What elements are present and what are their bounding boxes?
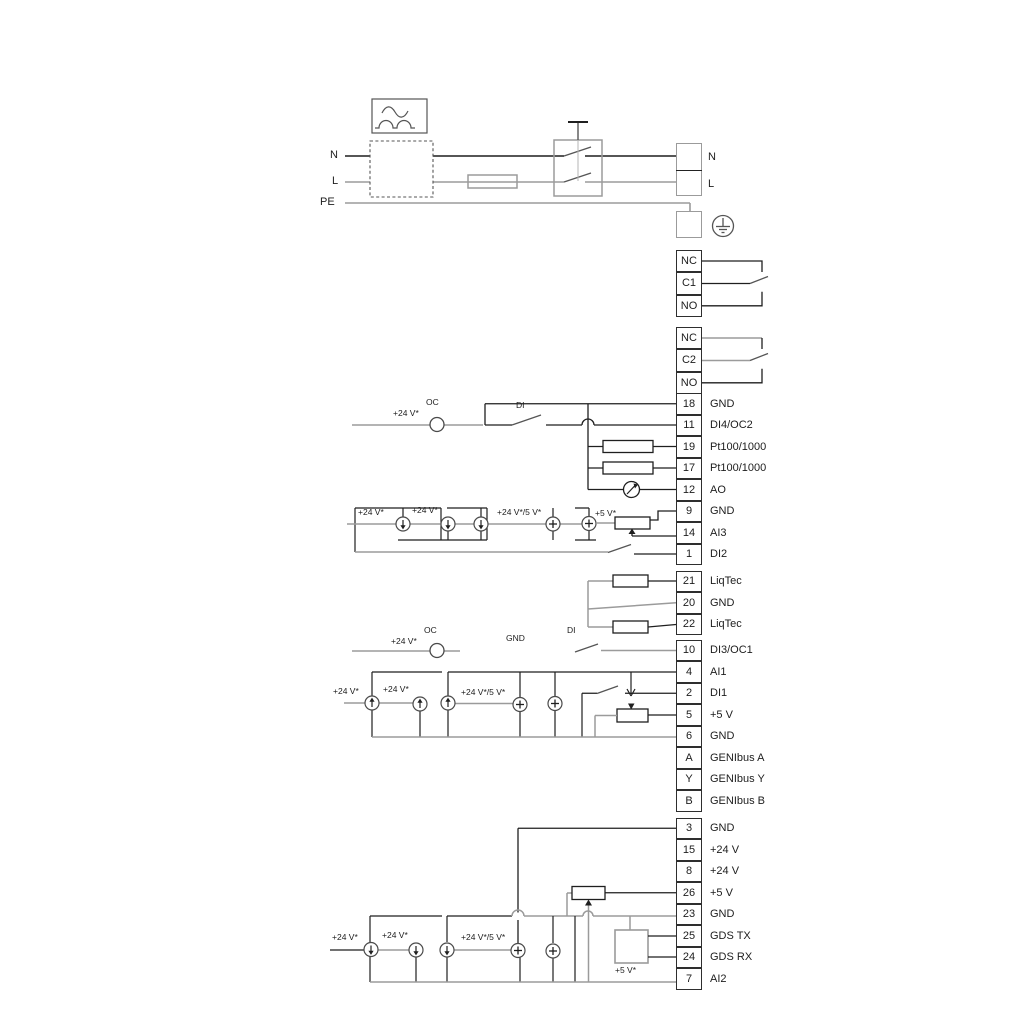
label-supply-24v: +24 V* (382, 930, 408, 940)
wiring-diagram: N L PE N L NCC1NO NCC2NO 18GND11DI4/OC21… (0, 0, 1024, 1024)
terminal-row: 10DI3/OC1 (676, 640, 796, 662)
label-digital-input: DI (516, 400, 525, 410)
label-supply-24v-5v: +24 V*/5 V* (497, 507, 541, 517)
terminal-number: 18 (676, 393, 702, 415)
terminal-label: +5 V (710, 704, 733, 726)
label-supply-5v: +5 V* (595, 508, 616, 518)
label-supply-24v: +24 V* (333, 686, 359, 696)
label-supply-24v: +24 V* (358, 507, 384, 517)
terminal-row: NO (676, 372, 796, 394)
mains-terminal-block (676, 143, 702, 196)
current-source-down-icon (474, 517, 488, 531)
label-supply-24v: +24 V* (383, 684, 409, 694)
terminal-row: 22LiqTec (676, 614, 796, 636)
terminal-number: 26 (676, 882, 702, 904)
terminal-label: DI4/OC2 (710, 415, 753, 437)
terminal-label: GND (710, 501, 734, 523)
terminal-number: NC (676, 327, 702, 349)
terminal-row: BGENIbus B (676, 790, 796, 812)
terminal-row: 17Pt100/1000 (676, 458, 796, 480)
terminal-row: 12AO (676, 479, 796, 501)
terminal-row: 3GND (676, 818, 796, 840)
current-source-down-icon (409, 943, 423, 957)
terminal-row: YGENIbus Y (676, 769, 796, 791)
terminal-row: 21LiqTec (676, 571, 796, 593)
voltage-source-icon (548, 697, 562, 711)
terminal-label: DI2 (710, 544, 727, 566)
terminal-label: AI2 (710, 968, 727, 990)
analog-output-meter-icon (624, 482, 640, 498)
terminal-label: GND (710, 393, 734, 415)
terminal-label: GENIbus A (710, 747, 764, 769)
terminal-row: 8+24 V (676, 861, 796, 883)
terminal-number: C2 (676, 349, 702, 371)
gds-sensor-box (615, 930, 648, 963)
terminal-row: 2DI1 (676, 683, 796, 705)
label-open-collector: OC (426, 397, 439, 407)
terminal-number: 10 (676, 640, 702, 662)
terminal-number: 6 (676, 726, 702, 748)
terminal-number: 19 (676, 436, 702, 458)
label-neutral-right: N (708, 151, 716, 163)
terminal-number: 15 (676, 839, 702, 861)
terminal-label: DI1 (710, 683, 727, 705)
terminal-number: NC (676, 250, 702, 272)
terminal-row: 7AI2 (676, 968, 796, 990)
label-supply-24v-5v: +24 V*/5 V* (461, 687, 505, 697)
terminal-number: NO (676, 295, 702, 317)
current-source-down-icon (396, 517, 410, 531)
terminal-row: 6GND (676, 726, 796, 748)
voltage-source-icon (511, 944, 525, 958)
label-supply-24v: +24 V* (393, 408, 419, 418)
terminal-label: Pt100/1000 (710, 458, 766, 480)
current-source-down-icon (441, 517, 455, 531)
terminal-number: 14 (676, 522, 702, 544)
label-gnd-wire: GND (506, 633, 525, 643)
label-supply-5v: +5 V* (615, 965, 636, 975)
terminal-label: Pt100/1000 (710, 436, 766, 458)
pt100-and-ao-wiring (588, 404, 676, 498)
terminal-row: 24GDS RX (676, 947, 796, 969)
terminal-row: NC (676, 250, 796, 272)
terminal-number: 9 (676, 501, 702, 523)
potentiometer-ai1 (617, 709, 648, 722)
terminal-row: C1 (676, 272, 796, 294)
terminal-label: GND (710, 818, 734, 840)
terminal-row: 15+24 V (676, 839, 796, 861)
terminal-row: 14AI3 (676, 522, 796, 544)
terminal-number: 22 (676, 614, 702, 636)
terminal-number: 17 (676, 458, 702, 480)
terminal-number: 7 (676, 968, 702, 990)
potentiometer-ai2 (572, 887, 605, 900)
terminal-label: +24 V (710, 861, 739, 883)
terminal-label: AO (710, 479, 726, 501)
terminal-number: B (676, 790, 702, 812)
terminal-number: 21 (676, 571, 702, 593)
label-open-collector: OC (424, 625, 437, 635)
terminal-label: LiqTec (710, 614, 742, 636)
terminal-label: GND (710, 726, 734, 748)
terminal-row: 19Pt100/1000 (676, 436, 796, 458)
terminal-number: 23 (676, 904, 702, 926)
isolation-dashed-box (370, 141, 433, 197)
terminal-row: C2 (676, 349, 796, 371)
terminal-label: GDS RX (710, 947, 752, 969)
terminal-number: 1 (676, 544, 702, 566)
terminal-row: 20GND (676, 592, 796, 614)
liqtec-wiring (588, 575, 676, 633)
terminal-row: 23GND (676, 904, 796, 926)
label-line-right: L (708, 178, 714, 190)
label-pe: PE (320, 196, 335, 208)
terminal-number: 2 (676, 683, 702, 705)
terminal-row: AGENIbus A (676, 747, 796, 769)
terminal-number: 3 (676, 818, 702, 840)
terminal-label: LiqTec (710, 571, 742, 593)
label-supply-24v: +24 V* (391, 636, 417, 646)
terminal-number: 5 (676, 704, 702, 726)
terminal-label: +5 V (710, 882, 733, 904)
sensor-supply-lower-wiring (330, 828, 676, 982)
terminal-number: 20 (676, 592, 702, 614)
voltage-source-icon (513, 698, 527, 712)
terminal-number: 8 (676, 861, 702, 883)
terminal-number: 11 (676, 415, 702, 437)
terminal-number: C1 (676, 272, 702, 294)
terminal-row: 5+5 V (676, 704, 796, 726)
terminal-number: NO (676, 372, 702, 394)
terminal-label: AI3 (710, 522, 727, 544)
voltage-source-icon (582, 517, 596, 531)
terminal-row: 26+5 V (676, 882, 796, 904)
terminal-label: +24 V (710, 839, 739, 861)
label-line-left: L (332, 175, 338, 187)
terminal-row: 1DI2 (676, 544, 796, 566)
terminal-row: 25GDS TX (676, 925, 796, 947)
rectifier-symbol-box (372, 99, 427, 133)
terminal-label: GENIbus B (710, 790, 765, 812)
terminal-number: A (676, 747, 702, 769)
protective-earth-icon (713, 216, 734, 237)
current-source-up-icon (413, 697, 427, 711)
terminal-number: Y (676, 769, 702, 791)
voltage-source-icon (546, 944, 560, 958)
current-source-down-icon (440, 943, 454, 957)
current-source-down-icon (364, 943, 378, 957)
terminal-label: GND (710, 904, 734, 926)
sensor-supply-mid-wiring (344, 672, 676, 737)
label-supply-24v: +24 V* (412, 505, 438, 515)
current-source-up-icon (441, 696, 455, 710)
current-source-up-icon (365, 696, 379, 710)
label-supply-24v: +24 V* (332, 932, 358, 942)
terminal-row: 11DI4/OC2 (676, 415, 796, 437)
terminal-label: GENIbus Y (710, 769, 765, 791)
terminal-label: GND (710, 592, 734, 614)
label-neutral-left: N (330, 149, 338, 161)
terminal-row: 4AI1 (676, 661, 796, 683)
terminal-number: 4 (676, 661, 702, 683)
terminal-row: 9GND (676, 501, 796, 523)
terminal-row: NO (676, 295, 796, 317)
terminal-row: NC (676, 327, 796, 349)
terminal-number: 12 (676, 479, 702, 501)
terminal-row: 18GND (676, 393, 796, 415)
label-supply-24v-5v: +24 V*/5 V* (461, 932, 505, 942)
terminal-label: AI1 (710, 661, 727, 683)
terminal-number: 24 (676, 947, 702, 969)
terminal-number: 25 (676, 925, 702, 947)
terminal-label: DI3/OC1 (710, 640, 753, 662)
label-digital-input: DI (567, 625, 576, 635)
terminal-label: GDS TX (710, 925, 751, 947)
potentiometer-ai3 (615, 517, 650, 529)
pe-terminal-block (676, 211, 702, 238)
main-switch-icon (554, 122, 602, 196)
voltage-source-icon (546, 517, 560, 531)
